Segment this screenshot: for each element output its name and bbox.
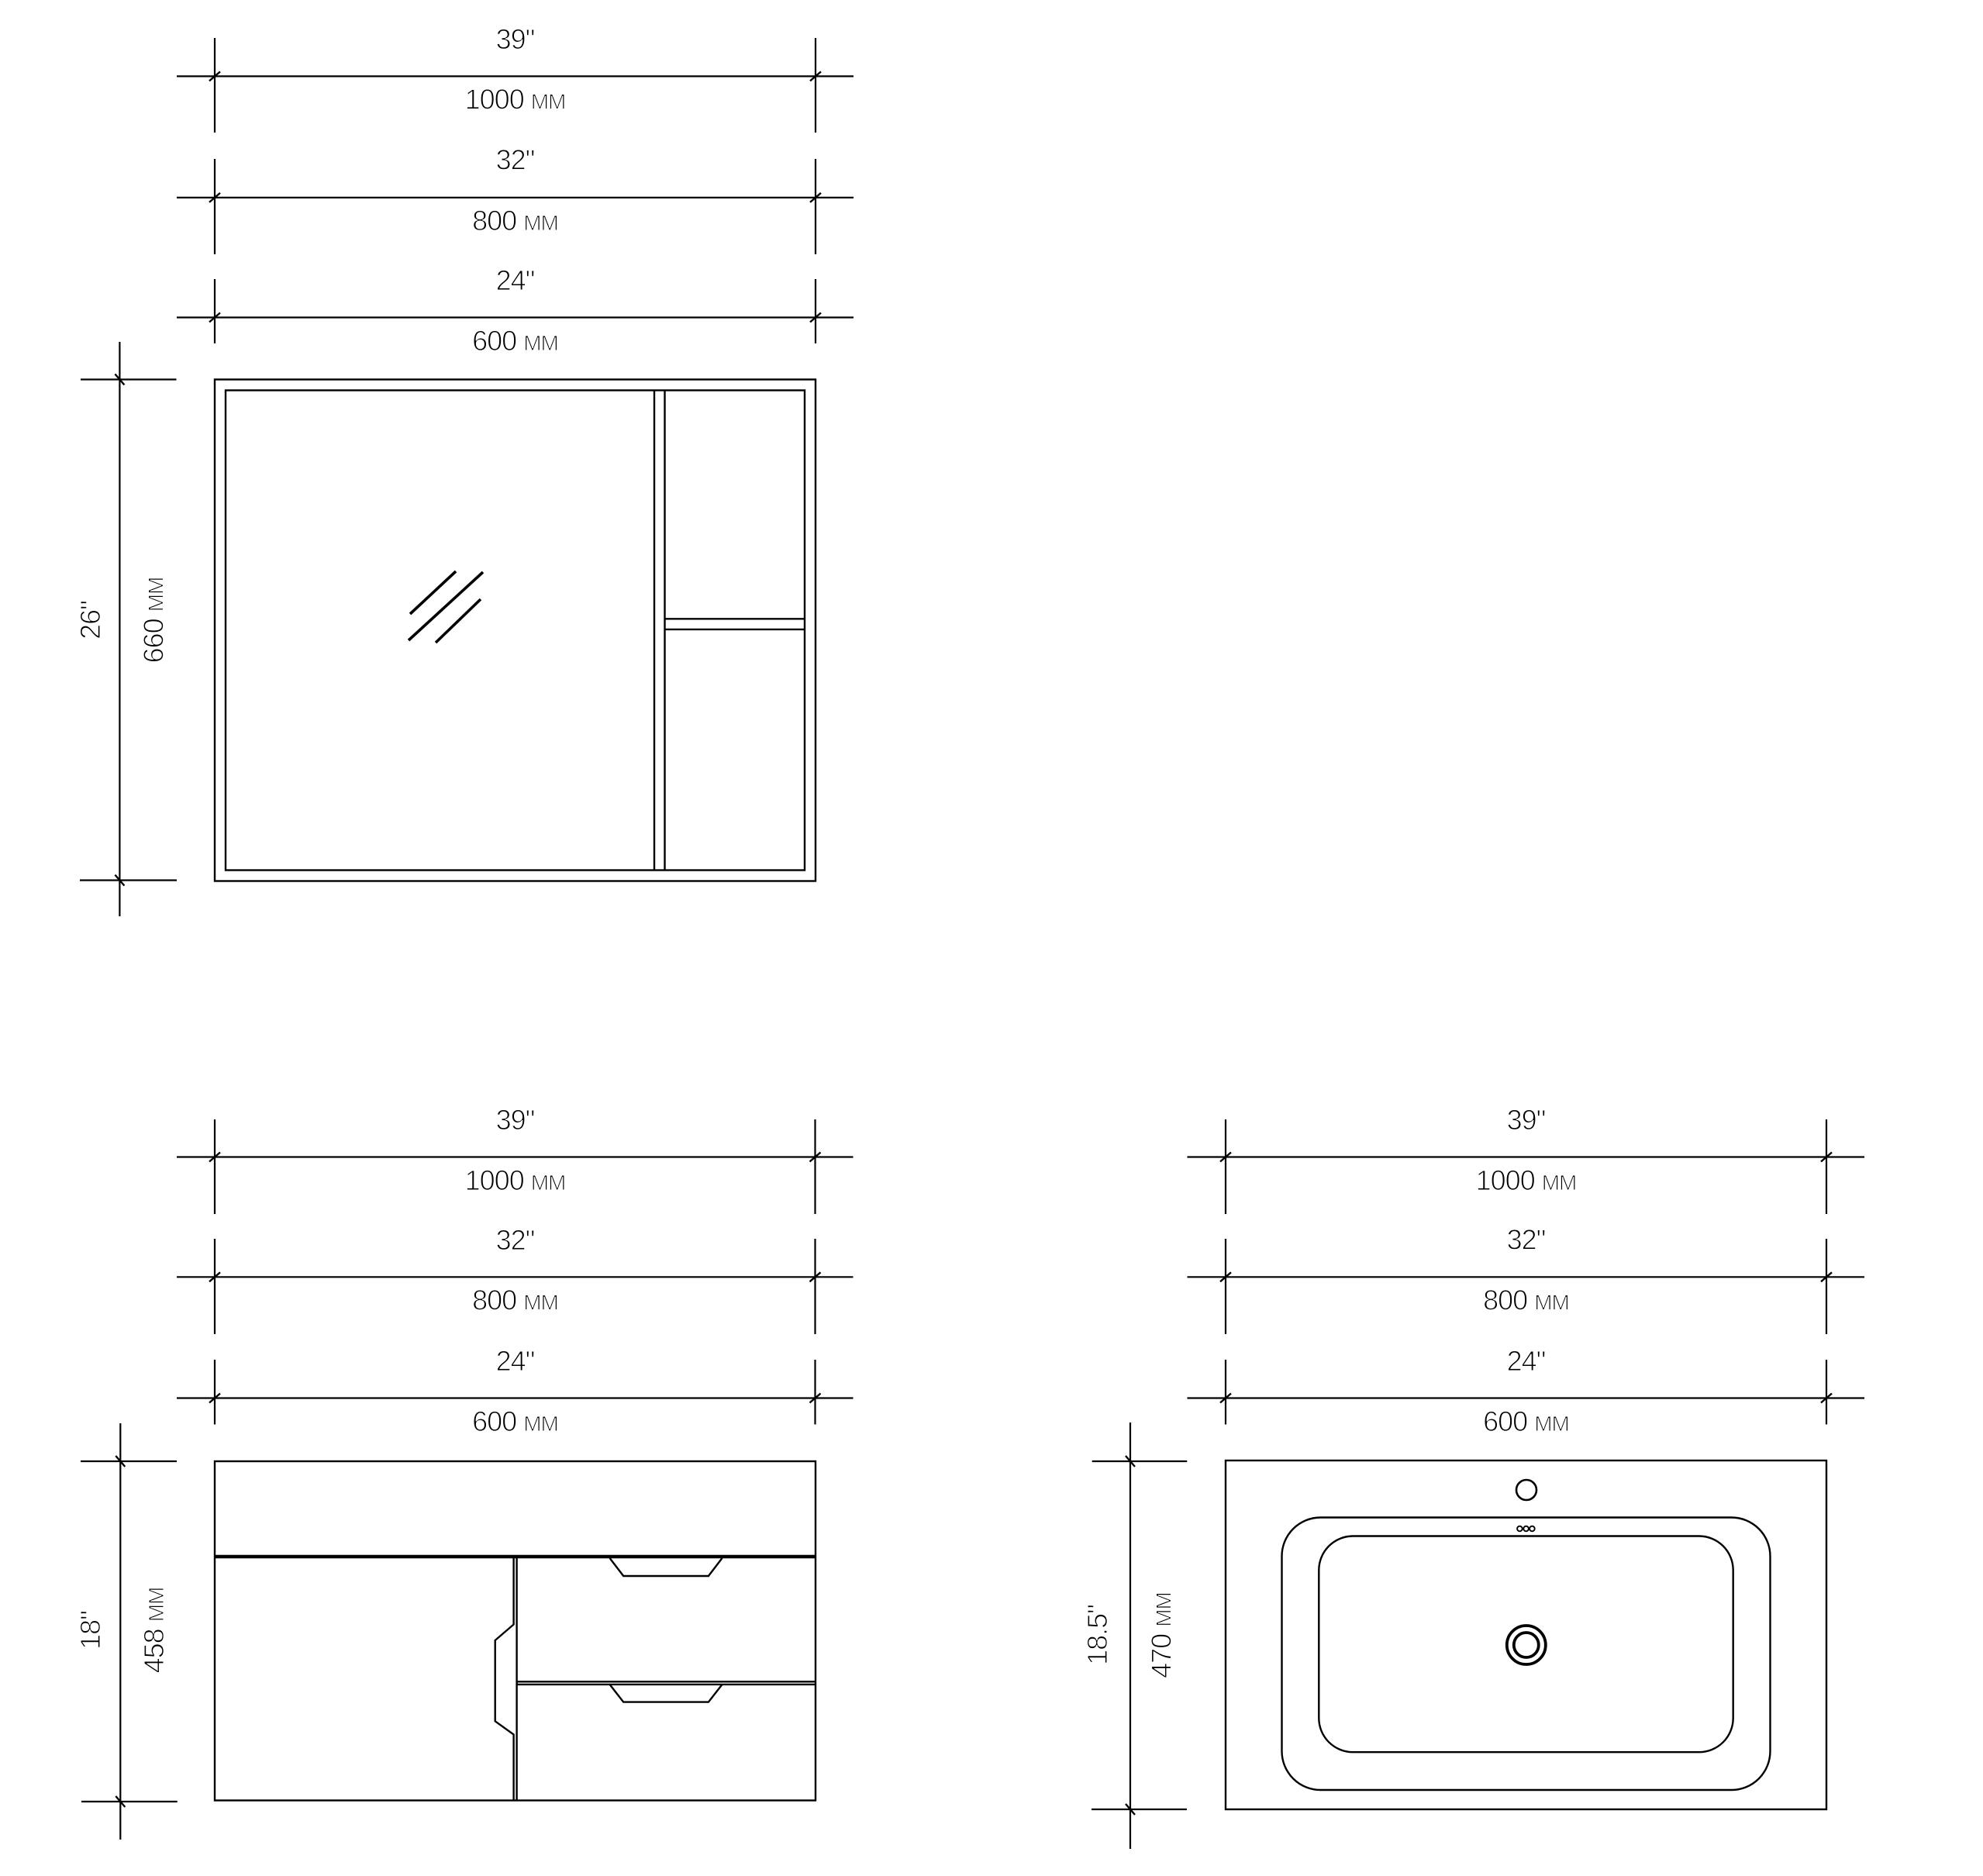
svg-text:24": 24" xyxy=(496,1345,535,1377)
svg-text:39": 39" xyxy=(496,1104,535,1136)
svg-text:39": 39" xyxy=(496,23,535,55)
svg-text:24": 24" xyxy=(496,264,535,296)
svg-text:26": 26" xyxy=(74,601,106,640)
svg-text:18": 18" xyxy=(74,1611,106,1650)
svg-text:32": 32" xyxy=(496,144,535,176)
svg-text:39": 39" xyxy=(1507,1104,1546,1136)
svg-text:18.5": 18.5" xyxy=(1081,1605,1113,1665)
svg-text:32": 32" xyxy=(496,1224,535,1256)
svg-text:32": 32" xyxy=(1507,1224,1546,1256)
svg-text:24": 24" xyxy=(1507,1345,1546,1377)
